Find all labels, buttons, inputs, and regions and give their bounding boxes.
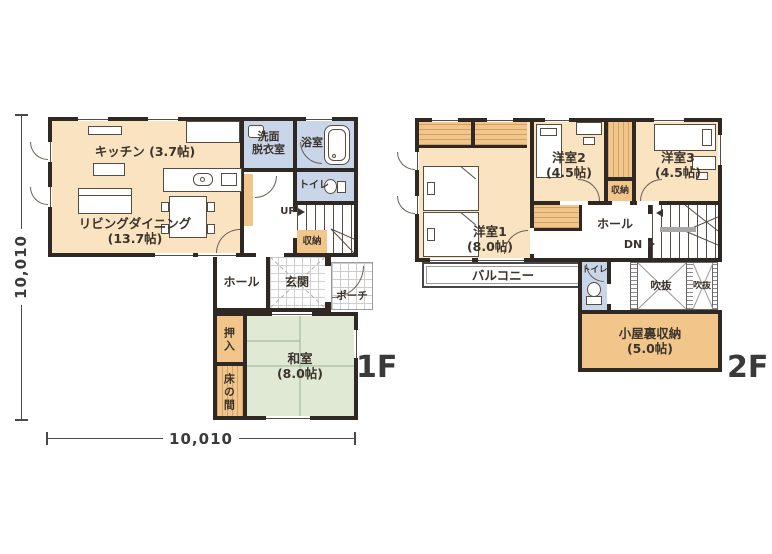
stove-icon — [221, 173, 237, 186]
kitchen-counter-icon — [186, 121, 240, 143]
door-arc-icon — [30, 187, 48, 205]
label-bedroom3: 洋室3 (4.5帖) — [638, 150, 718, 181]
window-marker — [654, 118, 684, 122]
window-marker — [415, 152, 419, 170]
label-hall-2f: ホール — [584, 217, 646, 232]
label-living: リビングダイニング (13.7帖) — [55, 216, 215, 247]
pillow-icon — [427, 228, 435, 241]
table-icon — [93, 163, 125, 176]
window-marker — [155, 253, 193, 257]
tick-icon — [354, 432, 356, 445]
desk-icon — [576, 122, 602, 135]
label-stairs-down: DN — [620, 238, 646, 251]
door-opening — [530, 228, 534, 254]
floor-label-2f: 2F — [727, 350, 768, 385]
tv-icon — [88, 126, 122, 135]
label-void-2: 吹抜 — [691, 281, 713, 292]
toilet-tank-icon — [586, 296, 602, 305]
label-oshiire: 押入 — [222, 322, 235, 358]
label-kitchen: キッチン (3.7帖) — [70, 144, 220, 159]
label-storage-1f: 収納 — [297, 236, 327, 248]
sliding-door-marker — [272, 312, 312, 316]
window-marker — [198, 253, 236, 257]
stairs-handrail — [660, 227, 696, 232]
window-marker — [478, 258, 524, 262]
label-attic: 小屋裏収納 (5.0帖) — [592, 326, 708, 357]
door-opening — [637, 201, 659, 205]
tick-icon — [46, 432, 48, 445]
door-opening — [560, 201, 588, 205]
window-marker — [432, 118, 458, 122]
floorplan-canvas: 10,010 10,010 — [0, 0, 772, 554]
label-tokonoma: 床の間 — [222, 370, 235, 414]
up-arrow-icon — [298, 208, 305, 216]
window-marker — [718, 135, 722, 165]
label-bedroom2: 洋室2 (4.5帖) — [534, 150, 604, 181]
chair-icon — [161, 202, 169, 212]
tick-icon — [15, 419, 28, 421]
window-marker — [415, 196, 419, 214]
drain-icon — [332, 154, 336, 158]
label-toilet-2f: トイレ — [582, 265, 607, 275]
label-toilet-1f: トイレ — [299, 180, 327, 192]
label-entrance: 玄関 — [272, 275, 322, 290]
window-marker — [306, 117, 332, 121]
window-marker — [430, 258, 472, 262]
closet-strip — [608, 122, 632, 177]
label-porch: ポーチ — [331, 290, 373, 303]
chair-icon — [583, 137, 595, 145]
bedroom2-closet — [534, 205, 582, 231]
window-marker — [48, 142, 52, 162]
door-opening — [648, 214, 652, 238]
label-storage-2f: 収納 — [608, 186, 632, 197]
window-marker — [78, 117, 108, 121]
label-void-1: 吹抜 — [636, 280, 686, 293]
label-bedroom1: 洋室1 (8.0帖) — [455, 224, 525, 255]
label-bath: 浴室 — [297, 136, 327, 149]
pillow-icon — [427, 182, 435, 195]
door-arc-icon — [397, 196, 415, 214]
label-tatami: 和室 (8.0帖) — [265, 351, 335, 382]
label-stairs-up: UP — [277, 206, 299, 218]
toilet-tank-icon — [337, 181, 346, 193]
corridor-storage-strip — [244, 174, 253, 226]
dimension-label-horizontal: 10,010 — [163, 430, 239, 448]
door-arc-icon — [397, 152, 415, 170]
label-hall-1f: ホール — [217, 275, 266, 290]
sofa-icon — [78, 188, 132, 214]
door-opening — [607, 284, 611, 304]
door-opening — [256, 253, 284, 257]
pillow-icon — [540, 128, 557, 136]
bathtub-inner-icon — [328, 129, 346, 161]
window-marker — [48, 187, 52, 207]
dn-arrow-icon — [648, 240, 655, 248]
door-opening — [612, 201, 630, 205]
dimension-label-vertical: 10,010 — [12, 229, 30, 305]
sink-drain-icon — [200, 177, 205, 182]
door-arc-icon — [30, 142, 48, 160]
label-balcony: バルコニー — [432, 268, 574, 283]
bedroom1-closet — [475, 122, 527, 148]
window-marker — [487, 118, 513, 122]
window-marker — [545, 118, 569, 122]
railing-hatch — [713, 263, 717, 309]
window-marker — [266, 416, 310, 420]
window-marker — [148, 117, 178, 121]
chair-icon — [207, 202, 215, 212]
bedroom1-closet — [419, 122, 471, 148]
floor-label-1f: 1F — [356, 350, 397, 385]
toilet-icon — [587, 282, 601, 297]
pillow-icon — [702, 129, 712, 146]
down-arrow-icon — [656, 209, 663, 217]
tick-icon — [15, 114, 28, 116]
label-washroom: 洗面 脱衣室 — [244, 130, 293, 157]
